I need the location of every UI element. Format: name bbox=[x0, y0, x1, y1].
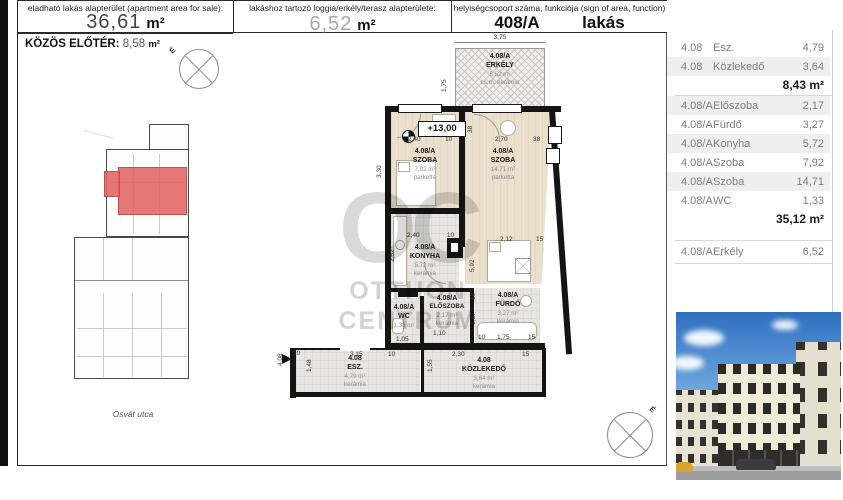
room-szoba-right-label: 4.08/A SZOBA 14,71 m² parketta bbox=[468, 147, 538, 183]
dim: 2,40 bbox=[408, 136, 421, 143]
dim: 38 bbox=[533, 136, 540, 143]
key-plan-line bbox=[161, 293, 162, 377]
window bbox=[398, 104, 442, 113]
table-divider bbox=[675, 263, 832, 264]
cloud bbox=[684, 330, 724, 346]
car-yellow bbox=[676, 462, 693, 472]
building-photo bbox=[676, 312, 841, 480]
balcony-area-value: 6,52 bbox=[309, 13, 352, 35]
key-plan-line bbox=[103, 293, 104, 377]
dim: 10 bbox=[478, 334, 485, 341]
car-dark bbox=[736, 459, 776, 470]
room-eloszoba-label: 4.08/A ELŐSZOBA 2,17 m² kerámia bbox=[421, 294, 473, 329]
dim: 15 bbox=[522, 351, 529, 358]
cloud bbox=[772, 320, 798, 330]
table bbox=[500, 120, 516, 136]
dim-balcony-depth: 1,75 bbox=[441, 79, 448, 92]
dim: 10 bbox=[470, 293, 477, 300]
common-hall-unit: m² bbox=[148, 39, 160, 50]
common-hall-label: KÖZÖS ELŐTÉR: bbox=[25, 38, 120, 50]
room-konyha-label: 4.08/A KONYHA 5,72 m² kerámia bbox=[391, 243, 459, 279]
room-furdo-label: 4.08/A FÜRDŐ 3,27 m² kerámia bbox=[477, 291, 539, 327]
street bbox=[676, 470, 841, 480]
table-row: 4.08/AFürdő3,27 bbox=[667, 115, 830, 134]
common-hall-title: KÖZÖS ELŐTÉR: 8,58 m² bbox=[25, 38, 160, 50]
left-edge-bar bbox=[0, 0, 8, 466]
dim: 2,52 bbox=[389, 249, 396, 262]
building-right bbox=[796, 342, 841, 480]
shaft bbox=[398, 290, 418, 297]
dim: 10 bbox=[445, 136, 452, 143]
dim: 3,30 bbox=[376, 165, 383, 178]
table-row: 4.08/AElőszoba2,17 bbox=[667, 96, 830, 115]
key-plan-highlight bbox=[104, 171, 120, 197]
dim-line bbox=[455, 42, 545, 43]
leader-line bbox=[83, 130, 114, 139]
table-row: 4.08Közlekedő3,64 bbox=[667, 57, 830, 76]
room-balcony-label: 4.08/A ERKÉLY 6,52 m² cs.m. kerámia bbox=[455, 52, 545, 88]
apartment-area-value: 36,61 bbox=[86, 11, 141, 33]
compass-icon bbox=[179, 49, 219, 89]
dim: 1,55 bbox=[427, 359, 434, 372]
dim: 38 bbox=[467, 126, 474, 133]
building-main bbox=[718, 364, 800, 454]
window bbox=[546, 148, 560, 164]
balcony-area-unit: m² bbox=[357, 17, 375, 34]
table-row: 4.08/AKonyha5,72 bbox=[667, 134, 830, 153]
key-plan-line bbox=[75, 280, 188, 281]
dim: 5,92 bbox=[469, 259, 476, 272]
dim: 1,75 bbox=[497, 334, 510, 341]
subtotal-common: 8,43 m² bbox=[667, 76, 824, 95]
table-divider bbox=[675, 240, 832, 241]
wall bbox=[542, 348, 546, 393]
level-marker: +13,00 bbox=[418, 121, 466, 137]
key-plan-line bbox=[132, 238, 133, 280]
header-balcony-area: lakáshoz tartozó loggia/erkély/terasz al… bbox=[233, 0, 452, 33]
dim: 2,40 bbox=[407, 232, 420, 239]
table-row: 4.08/AWC1,33 bbox=[667, 191, 830, 210]
key-plan-line bbox=[77, 356, 187, 357]
unit-function: lakás bbox=[582, 13, 625, 33]
table-row: 4.08/ASzoba7,92 bbox=[667, 153, 830, 172]
summary-panel: 4.08Esz.4,79 4.08Közlekedő3,64 8,43 m² 4… bbox=[667, 0, 843, 500]
dim: 20 bbox=[293, 350, 300, 357]
header-unit-id: helyiségcsoport száma, funkciója (sign o… bbox=[451, 0, 668, 33]
wall bbox=[385, 208, 465, 214]
balcony-door bbox=[472, 104, 522, 113]
balcony-area-label: lakáshoz tartozó loggia/erkély/terasz al… bbox=[234, 3, 451, 13]
common-hall-value: 8,58 bbox=[123, 38, 145, 50]
key-plan-line bbox=[77, 328, 187, 329]
unit-number: 408/A bbox=[494, 13, 539, 33]
panel-right-border bbox=[832, 30, 833, 312]
room-esz-label: 4.08 ESZ. 4,79 m² kerámia bbox=[300, 354, 410, 390]
dim: 2,12 bbox=[500, 236, 513, 243]
wall-diagonal bbox=[549, 110, 572, 355]
compass-north-label: É bbox=[168, 46, 178, 56]
key-plan-highlight bbox=[118, 167, 187, 215]
room-szoba-left-label: 4.08/A SZOBA 7,92 m² parketta bbox=[391, 147, 459, 183]
dim: 1,48 bbox=[306, 359, 313, 372]
dim: 2,70 bbox=[495, 136, 508, 143]
dim-balcony-width: 3,75 bbox=[455, 34, 545, 41]
wall bbox=[290, 392, 546, 397]
apartment-area-unit: m² bbox=[146, 15, 164, 32]
table-row: 4.08Esz.4,79 bbox=[667, 38, 830, 57]
wall bbox=[421, 348, 424, 393]
key-plan-panel: KÖZÖS ELŐTÉR: 8,58 m² É bbox=[17, 33, 234, 466]
dim: 2,30 bbox=[452, 351, 465, 358]
dim: 10 bbox=[388, 351, 395, 358]
dim: 1,10 bbox=[433, 330, 446, 337]
compass-icon bbox=[607, 412, 653, 458]
pillow bbox=[489, 242, 501, 252]
dim: 1,87 bbox=[470, 312, 477, 325]
unit-id-label: helyiségcsoport száma, funkciója (sign o… bbox=[452, 3, 667, 13]
washing-machine bbox=[515, 258, 531, 274]
room-wc-label: 4.08/A WC 1,33 m² bbox=[386, 303, 422, 330]
street-label: Osvát utca bbox=[63, 409, 203, 419]
dim: 15 bbox=[528, 334, 535, 341]
compass-north-label: É bbox=[648, 405, 658, 415]
dim: 10 bbox=[447, 232, 454, 239]
header-area-for-sale: eladható lakás alapterület (apartment ar… bbox=[17, 0, 234, 33]
window bbox=[548, 126, 562, 144]
table-row: 4.08/ASzoba14,71 bbox=[667, 172, 830, 191]
dim: 3,15 bbox=[350, 351, 363, 358]
floor-plan-sheet: eladható lakás alapterület (apartment ar… bbox=[0, 0, 843, 500]
key-plan-line bbox=[103, 238, 104, 280]
dim: 15 bbox=[536, 236, 543, 243]
dim: 4,08 bbox=[277, 353, 284, 366]
table-row-balcony: 4.08/AErkély6,52 bbox=[667, 242, 830, 261]
key-plan-line bbox=[132, 293, 133, 377]
dim: 1,05 bbox=[396, 336, 409, 343]
floor-plan-panel: 4.08/A ERKÉLY 6,52 m² cs.m. kerámia 3,75… bbox=[233, 33, 667, 466]
cloud bbox=[676, 356, 704, 370]
key-plan-lower-block bbox=[74, 237, 189, 379]
subtotal-apartment: 35,12 m² bbox=[667, 210, 824, 229]
room-kozlekedo-label: 4.08 KÖZLEKEDŐ 3,64 m² kerámia bbox=[430, 356, 538, 392]
